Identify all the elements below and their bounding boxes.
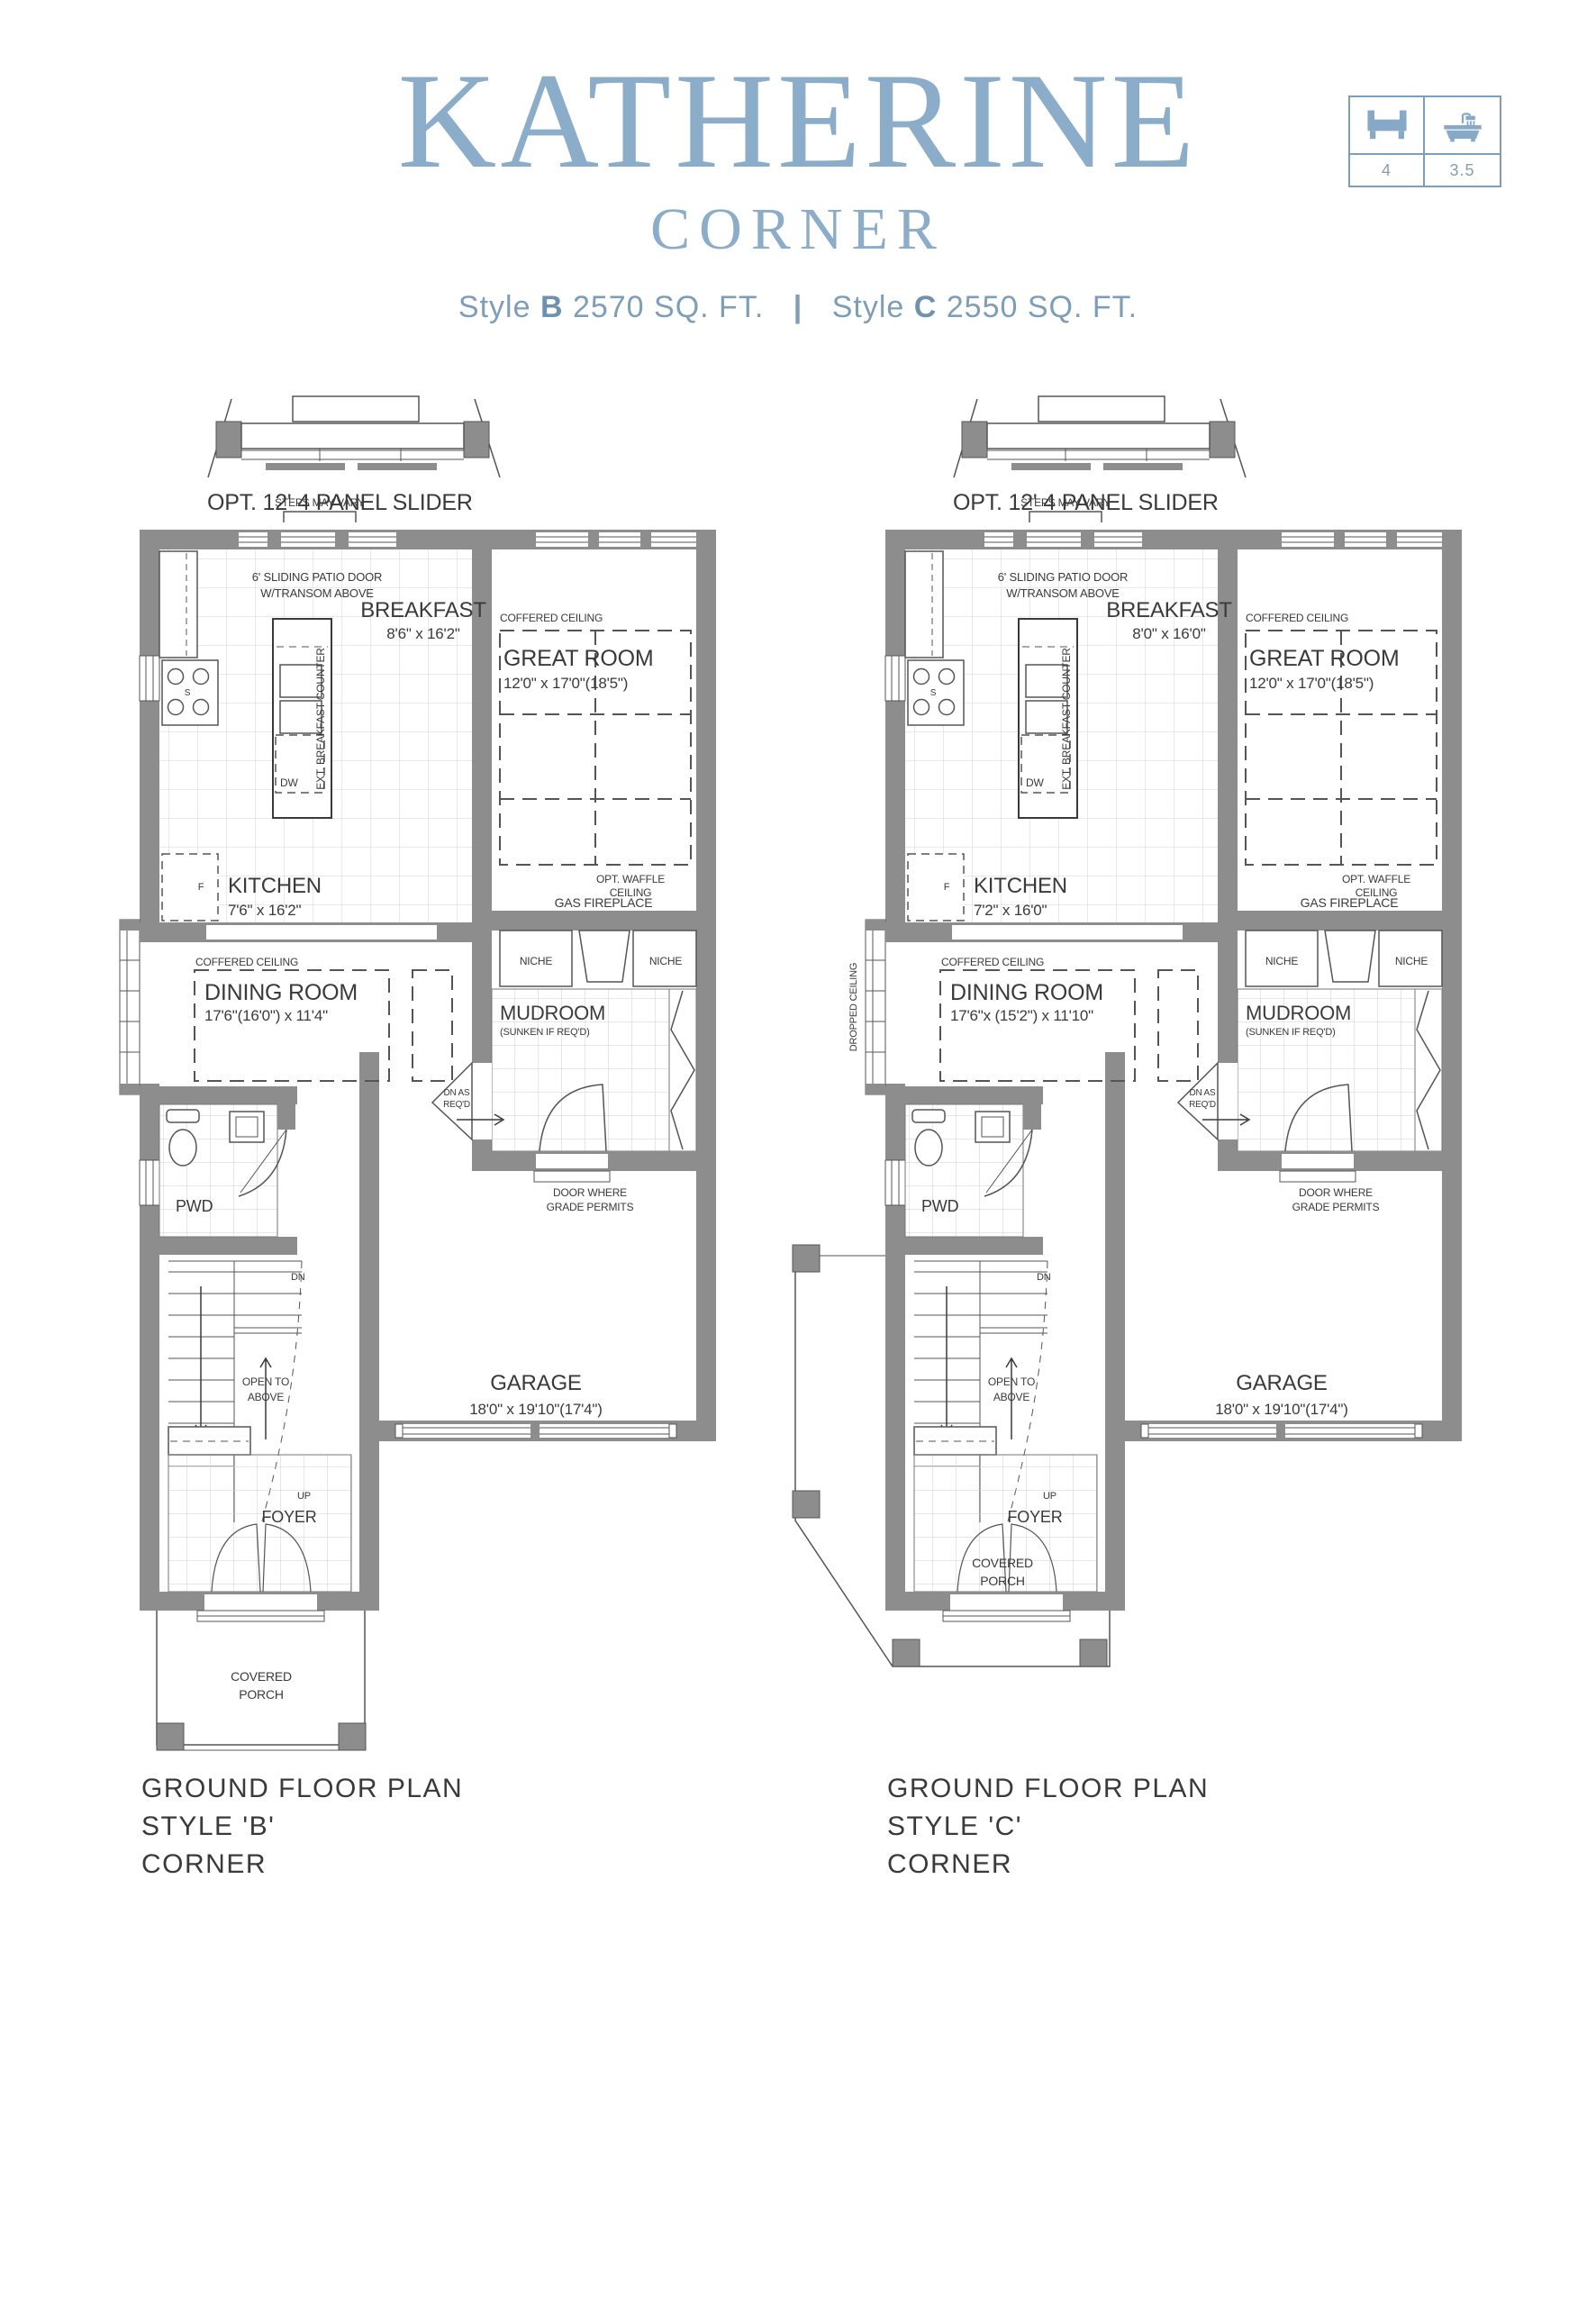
plan-caption-line2: STYLE 'B' (141, 1811, 275, 1841)
bath-icon-cell (1425, 97, 1500, 155)
bath-icon (1442, 107, 1483, 143)
breakfast-dims: 8'0" x 16'0" (1132, 625, 1206, 642)
opt-waffle-label: OPT. WAFFLE (596, 873, 665, 885)
patio-door-label2: W/TRANSOM ABOVE (1006, 586, 1120, 600)
style-separator: | (793, 290, 803, 325)
foyer-label: FOYER (1007, 1508, 1062, 1526)
garage-label: GARAGE (1236, 1371, 1328, 1395)
panel-slider-detail (208, 396, 500, 477)
porch-label2: PORCH (239, 1687, 284, 1702)
pwd-label: PWD (176, 1197, 213, 1215)
dining-coffered-label: COFFERED CEILING (195, 956, 298, 968)
panel-slider-detail (954, 396, 1246, 477)
bed-icon-cell (1350, 97, 1425, 155)
style-c-sqft: 2550 SQ. FT. (947, 290, 1138, 324)
mudroom-sub-label: (SUNKEN IF REQ'D) (500, 1027, 590, 1038)
dn-as-reqd-label: DN AS (443, 1088, 470, 1098)
kitchen-label: KITCHEN (228, 874, 322, 898)
dn-label: DN (1037, 1272, 1051, 1283)
plan-caption-line1: GROUND FLOOR PLAN (887, 1774, 1209, 1803)
open-above-label: OPEN TO (242, 1375, 289, 1388)
kitchen-dims: 7'6" x 16'2" (228, 902, 302, 919)
stove-label: S (930, 688, 937, 698)
door-where-label2: GRADE PERMITS (1292, 1201, 1380, 1213)
up-label: UP (297, 1491, 311, 1502)
page-subtitle: CORNER (0, 200, 1596, 259)
gas-fireplace-label: GAS FIREPLACE (555, 895, 653, 910)
dining-room-label: DINING ROOM (950, 980, 1103, 1005)
bedroom-count: 4 (1350, 155, 1425, 186)
style-sqft-line: Style B 2570 SQ. FT. | Style C 2550 SQ. … (0, 290, 1596, 325)
open-above-label: OPEN TO (988, 1375, 1035, 1388)
niche-right-label: NICHE (649, 955, 683, 967)
niche-right-label: NICHE (1395, 955, 1428, 967)
foyer-label: FOYER (261, 1508, 316, 1526)
great-room-label: GREAT ROOM (1249, 646, 1400, 671)
great-coffered-label: COFFERED CEILING (500, 612, 603, 624)
door-where-label: DOOR WHERE (553, 1186, 627, 1199)
bed-icon (1364, 108, 1410, 142)
dining-room-dims: 17'6"(16'0") x 11'4" (204, 1007, 328, 1024)
dn-label: DN (291, 1272, 305, 1283)
mudroom-label: MUDROOM (500, 1002, 605, 1024)
dn-as-reqd-label: DN AS (1189, 1088, 1216, 1098)
plan-caption-line1: GROUND FLOOR PLAN (141, 1774, 463, 1803)
style-c-prefix: Style (832, 290, 905, 324)
niche-left-label: NICHE (520, 955, 553, 967)
fridge-label: F (198, 882, 204, 893)
great-coffered-label: COFFERED CEILING (1246, 612, 1348, 624)
style-b-prefix: Style (458, 290, 531, 324)
plan-caption-line3: CORNER (887, 1849, 1012, 1879)
floor-plan-style-c: OPT. 12' 4 PANEL SLIDER STEPS MAY VARY 6… (741, 377, 1498, 1890)
patio-door-label: 6' SLIDING PATIO DOOR (252, 570, 382, 584)
dn-as-reqd-label2: REQ'D (443, 1100, 470, 1110)
style-c-letter: C (914, 290, 938, 324)
kitchen-label: KITCHEN (974, 874, 1067, 898)
fridge-label: F (944, 882, 950, 893)
open-above-label2: ABOVE (993, 1391, 1030, 1403)
steps-label: STEPS MAY VARY (275, 496, 365, 509)
dishwasher-label: DW (280, 776, 298, 789)
steps-label: STEPS MAY VARY (1020, 496, 1111, 509)
floor-plan-sheet: KATHERINE CORNER Style B 2570 SQ. FT. | … (0, 0, 1596, 2306)
style-b-sqft: 2570 SQ. FT. (573, 290, 764, 324)
kitchen-dims: 7'2" x 16'0" (974, 902, 1047, 919)
up-label: UP (1043, 1491, 1056, 1502)
ext-counter-label: EXT. BREAKFAST COUNTER (1060, 648, 1073, 790)
style-b-letter: B (540, 290, 564, 324)
bed-bath-info-box: 4 3.5 (1348, 95, 1501, 187)
dn-as-reqd-label2: REQ'D (1189, 1100, 1216, 1110)
plan-caption-line3: CORNER (141, 1849, 267, 1879)
garage-dims: 18'0" x 19'10"(17'4") (469, 1401, 602, 1418)
mudroom-sub-label: (SUNKEN IF REQ'D) (1246, 1027, 1336, 1038)
door-where-label: DOOR WHERE (1299, 1186, 1373, 1199)
gas-fireplace-label: GAS FIREPLACE (1301, 895, 1399, 910)
garage-label: GARAGE (490, 1371, 582, 1395)
patio-door-label2: W/TRANSOM ABOVE (260, 586, 374, 600)
breakfast-label: BREAKFAST (360, 598, 486, 622)
dining-coffered-label: COFFERED CEILING (941, 956, 1044, 968)
porch-label: COVERED (972, 1556, 1033, 1570)
porch-label: COVERED (231, 1669, 292, 1684)
breakfast-label: BREAKFAST (1106, 598, 1232, 622)
opt-waffle-label: OPT. WAFFLE (1342, 873, 1410, 885)
ext-counter-label: EXT. BREAKFAST COUNTER (314, 648, 327, 790)
great-room-label: GREAT ROOM (503, 646, 654, 671)
great-room-dims: 12'0" x 17'0"(18'5") (1249, 675, 1374, 692)
breakfast-dims: 8'6" x 16'2" (386, 625, 460, 642)
dishwasher-label: DW (1026, 776, 1044, 789)
floor-plan-style-b: OPT. 12' 4 PANEL SLIDER STEPS MAY VARY 6… (0, 377, 752, 1890)
great-room-dims: 12'0" x 17'0"(18'5") (503, 675, 628, 692)
porch-label2: PORCH (980, 1574, 1025, 1588)
open-above-label2: ABOVE (248, 1391, 285, 1403)
niche-left-label: NICHE (1265, 955, 1299, 967)
dining-room-label: DINING ROOM (204, 980, 358, 1005)
dropped-ceiling-label: DROPPED CEILING (848, 963, 859, 1051)
stove-label: S (185, 688, 191, 698)
bathroom-count: 3.5 (1425, 155, 1500, 186)
garage-dims: 18'0" x 19'10"(17'4") (1215, 1401, 1347, 1418)
plan-caption-line2: STYLE 'C' (887, 1811, 1022, 1841)
mudroom-label: MUDROOM (1246, 1002, 1351, 1024)
door-where-label2: GRADE PERMITS (547, 1201, 634, 1213)
patio-door-label: 6' SLIDING PATIO DOOR (998, 570, 1128, 584)
dining-room-dims: 17'6"x (15'2") x 11'10" (950, 1007, 1093, 1024)
pwd-label: PWD (921, 1197, 959, 1215)
